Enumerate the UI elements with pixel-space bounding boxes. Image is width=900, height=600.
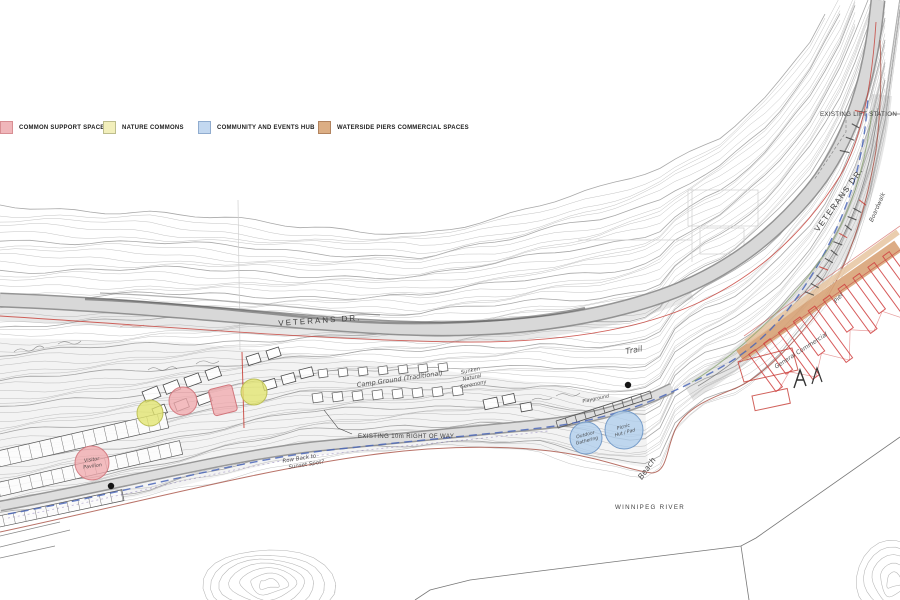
legend-item-common-support: COMMON SUPPORT SPACES	[0, 121, 109, 134]
legend-label: NATURE COMMONS	[122, 125, 184, 131]
label-right-of-way: EXISTING 10m RIGHT OF WAY	[358, 434, 454, 440]
legend-swatch-nature-commons	[103, 121, 116, 134]
legend-label: WATERSIDE PIERS COMMERCIAL SPACES	[337, 125, 469, 131]
note-trail: Trail	[625, 344, 644, 356]
red-parcel-outline	[752, 389, 790, 411]
legend-label: COMMUNITY AND EVENTS HUB	[217, 125, 315, 131]
property-line	[415, 437, 900, 600]
legend-swatch-waterside-piers	[318, 121, 331, 134]
marker-dot	[625, 382, 631, 388]
marker-dot	[108, 483, 114, 489]
label-winnipeg-river: WINNIPEG RIVER	[615, 504, 685, 511]
legend: COMMON SUPPORT SPACES NATURE COMMONS COM…	[0, 121, 900, 141]
legend-item-nature-commons: NATURE COMMONS	[103, 121, 184, 134]
river-island-contours	[203, 540, 900, 600]
legend-swatch-common-support	[0, 121, 13, 134]
legend-item-community-events: COMMUNITY AND EVENTS HUB	[198, 121, 315, 134]
legend-swatch-community-events	[198, 121, 211, 134]
property-line	[741, 546, 749, 600]
site-plan-drawing: EXISTING LIFT STATION VETERANS DR. VETER…	[0, 0, 900, 600]
legend-label: COMMON SUPPORT SPACES	[19, 125, 109, 131]
label-existing-lift-station: EXISTING LIFT STATION	[820, 111, 897, 118]
site-plan: EXISTING LIFT STATION VETERANS DR. VETER…	[0, 0, 900, 600]
property-lines	[415, 437, 900, 600]
legend-item-waterside-piers: WATERSIDE PIERS COMMERCIAL SPACES	[318, 121, 469, 134]
